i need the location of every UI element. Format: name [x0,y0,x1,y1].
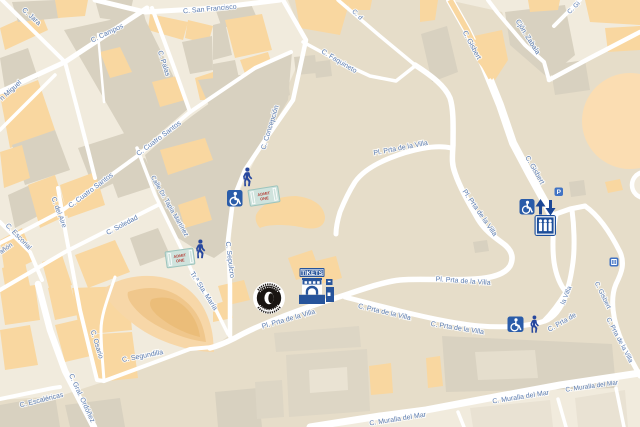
svg-text:P: P [557,189,562,196]
svg-text:TIKETS: TIKETS [301,271,322,277]
